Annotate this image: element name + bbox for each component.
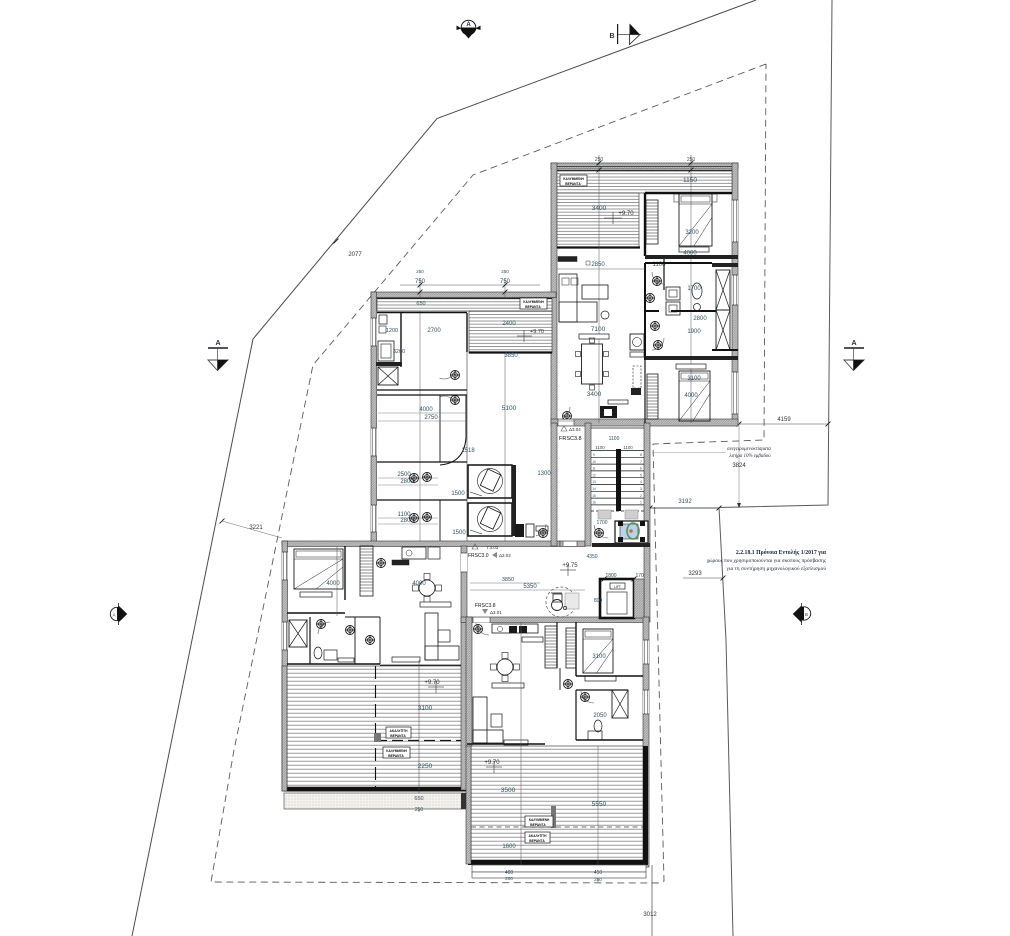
svg-text:1300: 1300	[537, 471, 551, 477]
svg-text:1700: 1700	[596, 520, 607, 526]
svg-text:ΑΚΑΛΥΠΤΗ: ΑΚΑΛΥΠΤΗ	[389, 729, 408, 733]
svg-text:+9.70: +9.70	[530, 329, 544, 335]
svg-text:3400: 3400	[587, 391, 602, 398]
svg-text:4000: 4000	[683, 251, 697, 257]
svg-text:B: B	[609, 33, 614, 40]
svg-text:7100: 7100	[591, 326, 606, 333]
svg-text:2.2.18.1 Πρόνοια Εντολής 1/201: 2.2.18.1 Πρόνοια Εντολής 1/2017 για	[736, 548, 827, 556]
svg-text:1800: 1800	[605, 573, 616, 579]
svg-text:1100: 1100	[609, 436, 620, 442]
svg-text:1: 1	[640, 501, 642, 505]
svg-text:Δ3.01: Δ3.01	[490, 610, 502, 615]
svg-text:10: 10	[592, 460, 596, 464]
svg-text:Γ3.03: Γ3.03	[487, 545, 499, 550]
svg-text:ΚΑΛΥΜΜΕΝΗ: ΚΑΛΥΜΜΕΝΗ	[529, 818, 550, 822]
svg-text:5100: 5100	[502, 405, 517, 412]
svg-text:3100: 3100	[418, 705, 433, 712]
svg-text:650: 650	[414, 796, 423, 802]
svg-text:1900: 1900	[687, 329, 701, 335]
svg-text:+9.70: +9.70	[484, 760, 500, 766]
svg-text:4000: 4000	[684, 393, 698, 399]
svg-text:7: 7	[640, 460, 642, 464]
svg-text:250: 250	[415, 807, 424, 813]
svg-text:1500: 1500	[452, 530, 466, 536]
svg-text:ΚΑΛΥΜΜΕΝΗ: ΚΑΛΥΜΜΕΝΗ	[563, 177, 584, 181]
svg-text:3293: 3293	[688, 571, 702, 577]
svg-text:χώρους που χρησιμοποιούνται γι: χώρους που χρησιμοποιούνται για σκοπούς …	[707, 558, 827, 564]
svg-text:12: 12	[592, 473, 596, 477]
svg-text:250: 250	[594, 877, 602, 882]
svg-text:2700: 2700	[427, 328, 441, 334]
svg-text:1500: 1500	[451, 491, 465, 497]
svg-text:1100: 1100	[595, 445, 605, 450]
svg-text:1600: 1600	[502, 844, 516, 850]
svg-text:3400: 3400	[592, 205, 607, 212]
svg-text:16: 16	[592, 501, 596, 505]
svg-text:3500: 3500	[501, 787, 516, 794]
svg-text:A: A	[215, 340, 220, 347]
svg-text:B: B	[805, 612, 808, 617]
svg-text:650: 650	[416, 301, 425, 307]
svg-text:Δ3.02: Δ3.02	[499, 553, 511, 558]
svg-text:750: 750	[415, 279, 426, 285]
svg-text:5550: 5550	[592, 801, 607, 808]
svg-text:ΒΕΡΑΝΤΑ: ΒΕΡΑΝΤΑ	[530, 823, 546, 827]
svg-text:1700: 1700	[687, 286, 701, 292]
svg-text:750: 750	[500, 279, 511, 285]
svg-text:για τη συντήρηση μηχανολογικο: για τη συντήρηση μηχανολογικού εξοπλισμο…	[726, 566, 827, 572]
svg-text:1100: 1100	[623, 445, 633, 450]
svg-text:ΒΕΡΑΝΤΑ: ΒΕΡΑΝΤΑ	[390, 734, 406, 738]
svg-text:λιτήρα 10% εμβαδού: λιτήρα 10% εμβαδού	[728, 454, 771, 459]
svg-text:3012: 3012	[643, 912, 657, 918]
svg-text:1150: 1150	[683, 177, 697, 184]
svg-text:4000: 4000	[412, 581, 426, 587]
svg-text:4: 4	[640, 480, 642, 484]
svg-text:ΒΕΡΑΝΤΑ: ΒΕΡΑΝΤΑ	[565, 182, 581, 186]
svg-text:ΒΕΡΑΝΤΑ: ΒΕΡΑΝΤΑ	[388, 754, 404, 758]
svg-text:450: 450	[594, 870, 603, 876]
svg-text:+9.70: +9.70	[424, 680, 440, 686]
svg-text:4000: 4000	[419, 407, 433, 413]
svg-text:2800: 2800	[693, 316, 707, 322]
svg-text:3100: 3100	[687, 376, 701, 382]
svg-text:ΑΚΑΛΥΠΤΗ: ΑΚΑΛΥΠΤΗ	[528, 834, 547, 838]
svg-text:Δ3.04: Δ3.04	[569, 427, 581, 432]
svg-text:ανεγειρομενοκτίσματα: ανεγειρομενοκτίσματα	[727, 447, 771, 452]
svg-text:2250: 2250	[418, 763, 433, 770]
svg-text:3824: 3824	[732, 463, 746, 469]
svg-text:8: 8	[640, 453, 642, 457]
svg-text:+9.70: +9.70	[618, 211, 634, 217]
svg-text:FRSC3.0: FRSC3.0	[468, 553, 489, 559]
svg-text:4350: 4350	[586, 554, 597, 560]
svg-text:ΚΑΛΥΜΜΕΝΗ: ΚΑΛΥΜΜΕΝΗ	[523, 300, 544, 304]
svg-text:3200: 3200	[685, 230, 699, 236]
svg-text:250: 250	[501, 269, 509, 274]
svg-text:14: 14	[592, 487, 596, 491]
svg-text:ΒΕΡΑΝΤΑ: ΒΕΡΑΝΤΑ	[525, 305, 541, 309]
svg-text:ΒΕΡΑΝΤΑ: ΒΕΡΑΝΤΑ	[529, 839, 545, 843]
svg-text:A: A	[466, 22, 471, 28]
svg-text:3221: 3221	[249, 525, 263, 531]
svg-text:5: 5	[640, 473, 642, 477]
svg-text:4000: 4000	[326, 581, 340, 587]
svg-text:2800: 2800	[400, 518, 414, 524]
svg-text:9: 9	[593, 453, 595, 457]
svg-text:250: 250	[687, 157, 696, 163]
svg-text:3: 3	[640, 487, 642, 491]
svg-text:250: 250	[416, 269, 424, 274]
svg-text:3850: 3850	[504, 353, 518, 359]
svg-text:2050: 2050	[593, 713, 607, 719]
svg-text:3850: 3850	[502, 577, 514, 583]
svg-text:ΚΑΛΥΜΜΕΝΗ: ΚΑΛΥΜΜΕΝΗ	[386, 749, 407, 753]
svg-text:1518: 1518	[461, 448, 475, 454]
svg-text:A: A	[112, 613, 115, 618]
svg-text:13: 13	[592, 480, 596, 484]
svg-text:3100: 3100	[592, 654, 606, 660]
svg-text:11: 11	[592, 467, 596, 471]
svg-text:LIFT: LIFT	[614, 585, 621, 589]
svg-text:4159: 4159	[777, 417, 791, 423]
svg-text:FRSC3.8: FRSC3.8	[559, 436, 582, 442]
svg-text:800: 800	[594, 598, 603, 604]
svg-text:+9.75: +9.75	[562, 563, 578, 569]
svg-text:5350: 5350	[523, 584, 537, 590]
svg-text:15: 15	[592, 494, 596, 498]
svg-text:A: A	[851, 340, 856, 347]
svg-text:2750: 2750	[424, 415, 438, 421]
svg-text:3200: 3200	[393, 349, 405, 355]
svg-text:250: 250	[595, 157, 604, 163]
svg-text:6: 6	[640, 467, 642, 471]
svg-text:2850: 2850	[591, 262, 605, 268]
svg-text:FRSC3.8: FRSC3.8	[475, 603, 496, 609]
svg-text:2400: 2400	[502, 321, 516, 327]
svg-text:2077: 2077	[348, 252, 362, 258]
svg-text:2: 2	[640, 494, 642, 498]
svg-text:1200: 1200	[386, 328, 398, 334]
svg-text:3192: 3192	[678, 499, 692, 505]
svg-text:200: 200	[505, 876, 513, 881]
